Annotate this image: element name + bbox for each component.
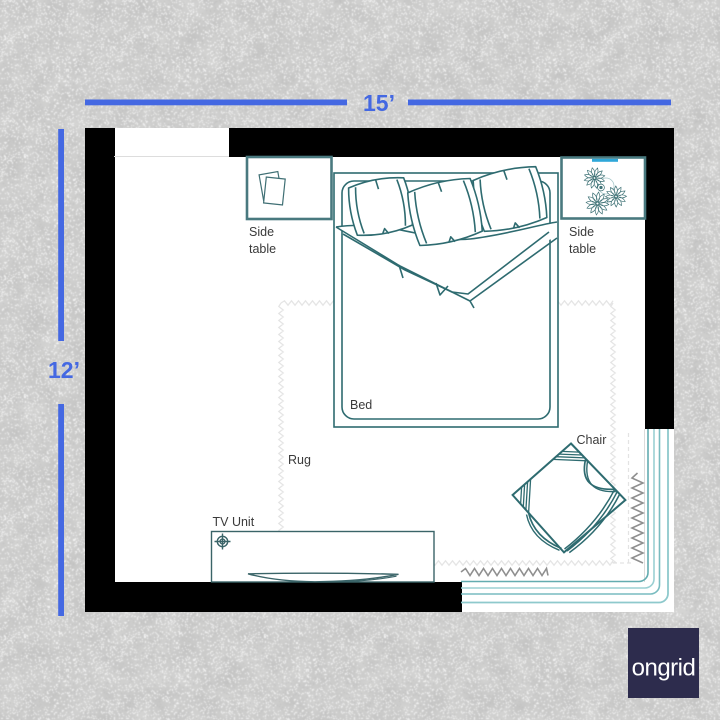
svg-text:15’: 15’ bbox=[363, 90, 395, 116]
svg-text:Side: Side bbox=[249, 225, 274, 239]
svg-text:Rug: Rug bbox=[288, 453, 311, 467]
svg-text:Chair: Chair bbox=[577, 433, 607, 447]
svg-text:TV Unit: TV Unit bbox=[213, 515, 255, 529]
svg-text:ongrid: ongrid bbox=[632, 655, 696, 682]
svg-text:table: table bbox=[569, 242, 596, 256]
svg-text:Side: Side bbox=[569, 225, 594, 239]
svg-text:12’: 12’ bbox=[48, 357, 80, 383]
svg-text:Bed: Bed bbox=[350, 398, 372, 412]
svg-text:table: table bbox=[249, 242, 276, 256]
